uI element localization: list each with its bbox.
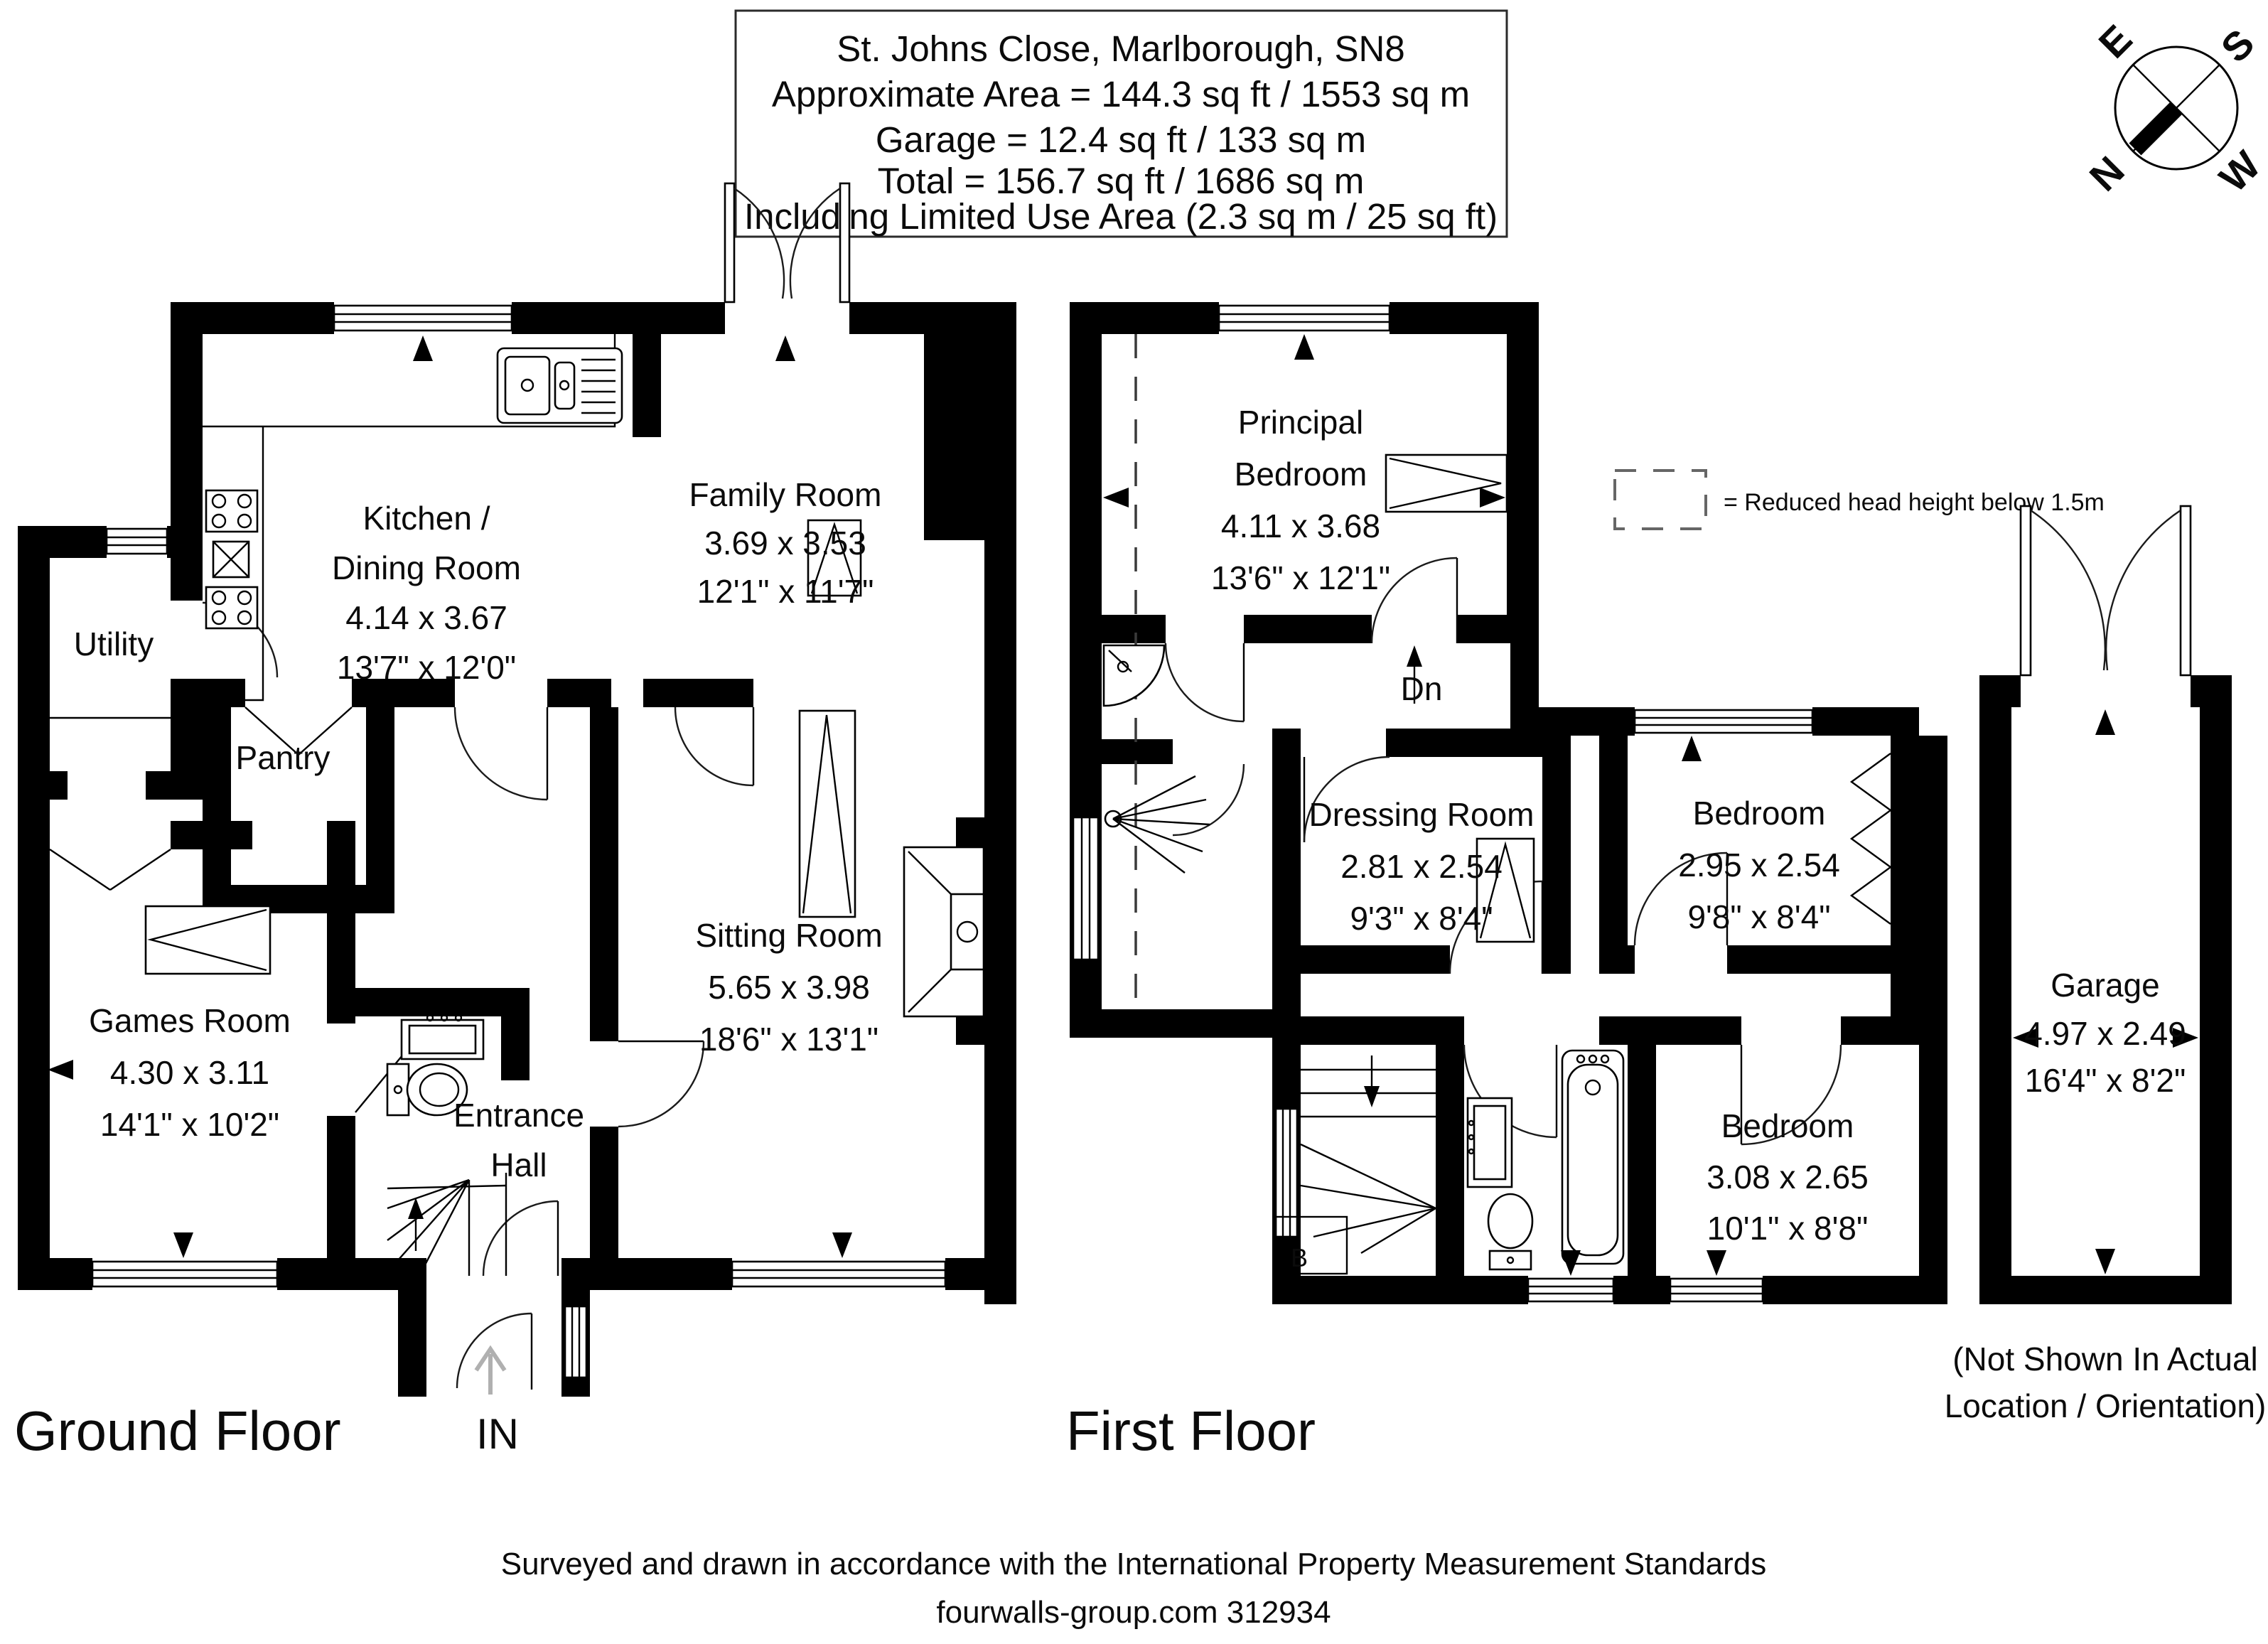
entrance-in-arrow-icon [476,1349,505,1395]
vestibule-window-icon [565,1306,586,1377]
title-garage-area: Garage = 12.4 sq ft / 133 sq m [876,119,1366,160]
games-window-icon [92,1262,277,1286]
sitting-door-icon [618,1041,704,1127]
family-tall-cupboard-icon [800,711,855,917]
floorplan-canvas: St. Johns Close, Marlborough, SN8 Approx… [0,0,2268,1644]
garage-note2: Location / Orientation) [1945,1387,2267,1424]
footer-standards: Surveyed and drawn in accordance with th… [501,1547,1767,1581]
family-metric: 3.69 x 3.53 [704,525,866,562]
principal-window-icon [1219,306,1390,331]
ground-floor-title: Ground Floor [14,1399,341,1462]
in-label: IN [476,1410,519,1458]
first-floor-title: First Floor [1066,1399,1316,1462]
kitchen-metric: 4.14 x 3.67 [345,599,507,636]
legend-label: = Reduced head height below 1.5m [1724,489,2105,516]
boiler-label: B [1291,1243,1308,1272]
title-area: Approximate Area = 144.3 sq ft / 1553 sq… [772,74,1470,114]
bedroom3-imperial: 10'1" x 8'8" [1707,1210,1869,1247]
principal-label: Principal [1238,404,1363,441]
garage-metric: 4.97 x 2.49 [2024,1015,2186,1052]
kitchen-imperial: 13'7" x 12'0" [337,649,516,686]
ground-floor-walls [18,301,1016,1397]
compass-icon: N E S W [2081,16,2268,200]
family-imperial: 12'1" x 11'7" [697,573,874,610]
ensuite-window-icon [1073,817,1098,960]
compass-east: E [2090,16,2141,67]
sloped-ceiling-zigzag [1852,753,1891,924]
dressing-label: Dressing Room [1309,796,1535,833]
family-label: Family Room [689,476,882,513]
sitting-window-icon [732,1262,945,1286]
title-limited-use: Including Limited Use Area (2.3 sq m / 2… [744,196,1498,237]
sitting-metric: 5.65 x 3.98 [708,969,870,1006]
garage-imperial: 16'4" x 8'2" [2025,1062,2186,1099]
games-double-door-icon [50,849,171,890]
compass-south: S [2213,21,2263,71]
compass-north: N [2081,148,2133,200]
compass-needle [2129,102,2183,156]
bedroom3-window-icon [1670,1279,1763,1301]
bathroom-toilet-icon [1488,1194,1532,1269]
garage-label: Garage [2051,967,2159,1004]
corridor-door-icon [455,707,547,800]
floorplan-page: St. Johns Close, Marlborough, SN8 Approx… [0,0,2268,1644]
fireplace-icon [904,847,984,1016]
bedroom2-label: Bedroom [1693,795,1826,832]
principal-metric: 4.11 x 3.68 [1221,507,1380,544]
garage-doors-icon [2021,506,2191,675]
title-box: St. Johns Close, Marlborough, SN8 Approx… [736,11,1507,237]
title-address: St. Johns Close, Marlborough, SN8 [837,28,1404,69]
games-wardrobe-icon [146,906,270,974]
title-total-area: Total = 156.7 sq ft / 1686 sq m [878,161,1365,201]
games-metric: 4.30 x 3.11 [110,1054,269,1091]
wc-basin-icon [402,1015,483,1059]
principal-imperial: 13'6" x 12'1" [1211,559,1390,596]
bedroom3-metric: 3.08 x 2.65 [1707,1159,1869,1196]
dn-label: Dn [1401,670,1443,707]
hob-icon [206,490,257,628]
utility-window-icon [107,529,167,554]
first-floor-labels: Principal Bedroom 4.11 x 3.68 13'6" x 12… [1211,404,1869,1247]
bedroom2-metric: 2.95 x 2.54 [1678,847,1840,883]
hall-label: Entrance [453,1097,584,1134]
bedroom2-window-icon [1635,710,1812,733]
corner-basin-icon [1104,645,1164,706]
bathroom-window-icon [1528,1279,1613,1301]
ensuite-door-icon [1166,643,1244,721]
dressing-metric: 2.81 x 2.54 [1340,848,1503,885]
utility-label: Utility [74,625,154,662]
games-label: Games Room [89,1002,291,1039]
bedroom2-imperial: 9'8" x 8'4" [1687,898,1830,935]
family-door-icon [675,707,753,785]
dressing-imperial: 9'3" x 8'4" [1350,900,1493,937]
games-imperial: 14'1" x 10'2" [100,1106,279,1143]
shower-icon [1105,776,1210,873]
kitchen-window-icon [334,306,512,331]
pantry-label: Pantry [236,739,330,776]
hall-label2: Hall [490,1146,547,1183]
footer-brand: fourwalls-group.com 312934 [936,1595,1331,1630]
sitting-label: Sitting Room [695,917,882,954]
kitchen-sink-icon [498,348,622,423]
sitting-imperial: 18'6" x 13'1" [699,1021,878,1058]
bathroom-basin-icon [1468,1098,1512,1187]
kitchen-label: Kitchen / [363,500,490,537]
first-stairs-icon [1301,1055,1436,1253]
kitchen-label2: Dining Room [332,549,521,586]
garage-note1: (Not Shown In Actual [1952,1341,2258,1377]
bath-icon [1562,1051,1623,1264]
principal-label2: Bedroom [1235,456,1367,493]
reduced-head-height-icon [1615,471,1706,529]
garage-plan: Garage 4.97 x 2.49 16'4" x 8'2" (Not Sho… [1945,506,2267,1424]
bedroom3-label: Bedroom [1721,1107,1854,1144]
